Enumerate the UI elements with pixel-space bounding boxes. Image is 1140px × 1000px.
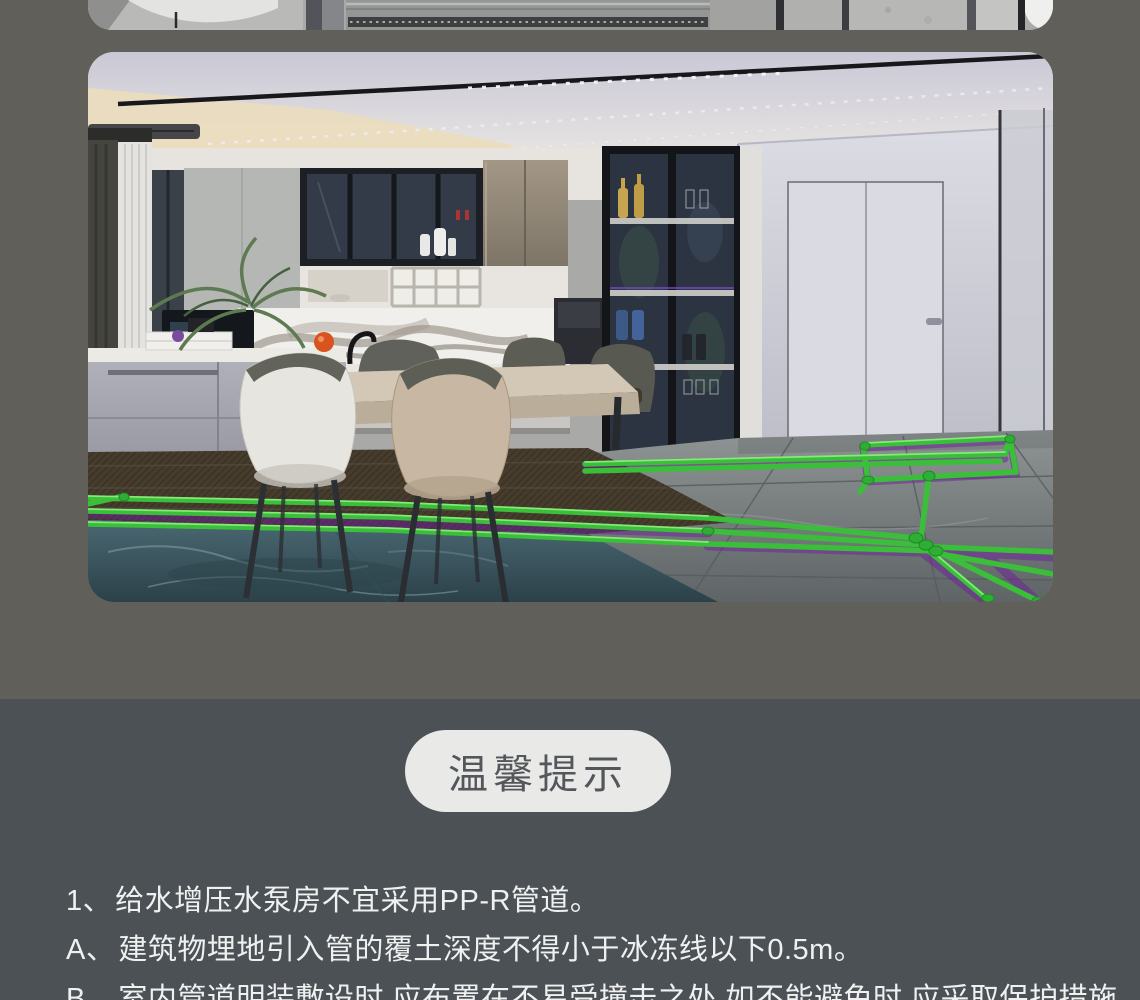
tips-section: 温馨提示 1、 给水增压水泵房不宜采用PP-R管道。 A、 建筑物埋地引入管的覆… (0, 698, 1140, 1000)
tip-text: 建筑物埋地引入管的覆土深度不得小于冰冻线以下0.5m。 (118, 926, 863, 968)
detail-images-section (0, 0, 1140, 698)
tip-label: 1、 (66, 877, 112, 919)
product-detail-page: 温馨提示 1、 给水增压水泵房不宜采用PP-R管道。 A、 建筑物埋地引入管的覆… (0, 0, 1140, 1000)
pipe-detail-image-partial (88, 0, 1053, 30)
tip-line: 1、 给水增压水泵房不宜采用PP-R管道。 (66, 873, 1136, 922)
tip-line: B、 室内管道明装敷设时,应布置在不易受撞击之处,如不能避免时,应采取保护措施。 (66, 971, 1136, 1000)
tip-text: 室内管道明装敷设时,应布置在不易受撞击之处,如不能避免时,应采取保护措施。 (118, 975, 1140, 1000)
kitchen-render-art (88, 52, 1053, 602)
tip-line: A、 建筑物埋地引入管的覆土深度不得小于冰冻线以下0.5m。 (66, 922, 1136, 971)
tips-badge: 温馨提示 (405, 730, 671, 812)
pipe-detail-art (88, 0, 1053, 30)
tip-label: B、 (66, 975, 115, 1000)
tip-text: 给水增压水泵房不宜采用PP-R管道。 (115, 877, 599, 919)
tip-label: A、 (66, 926, 115, 968)
tips-badge-label: 温馨提示 (448, 742, 628, 800)
tips-list: 1、 给水增压水泵房不宜采用PP-R管道。 A、 建筑物埋地引入管的覆土深度不得… (66, 873, 1136, 1000)
kitchen-pipes-render-image (88, 52, 1053, 602)
